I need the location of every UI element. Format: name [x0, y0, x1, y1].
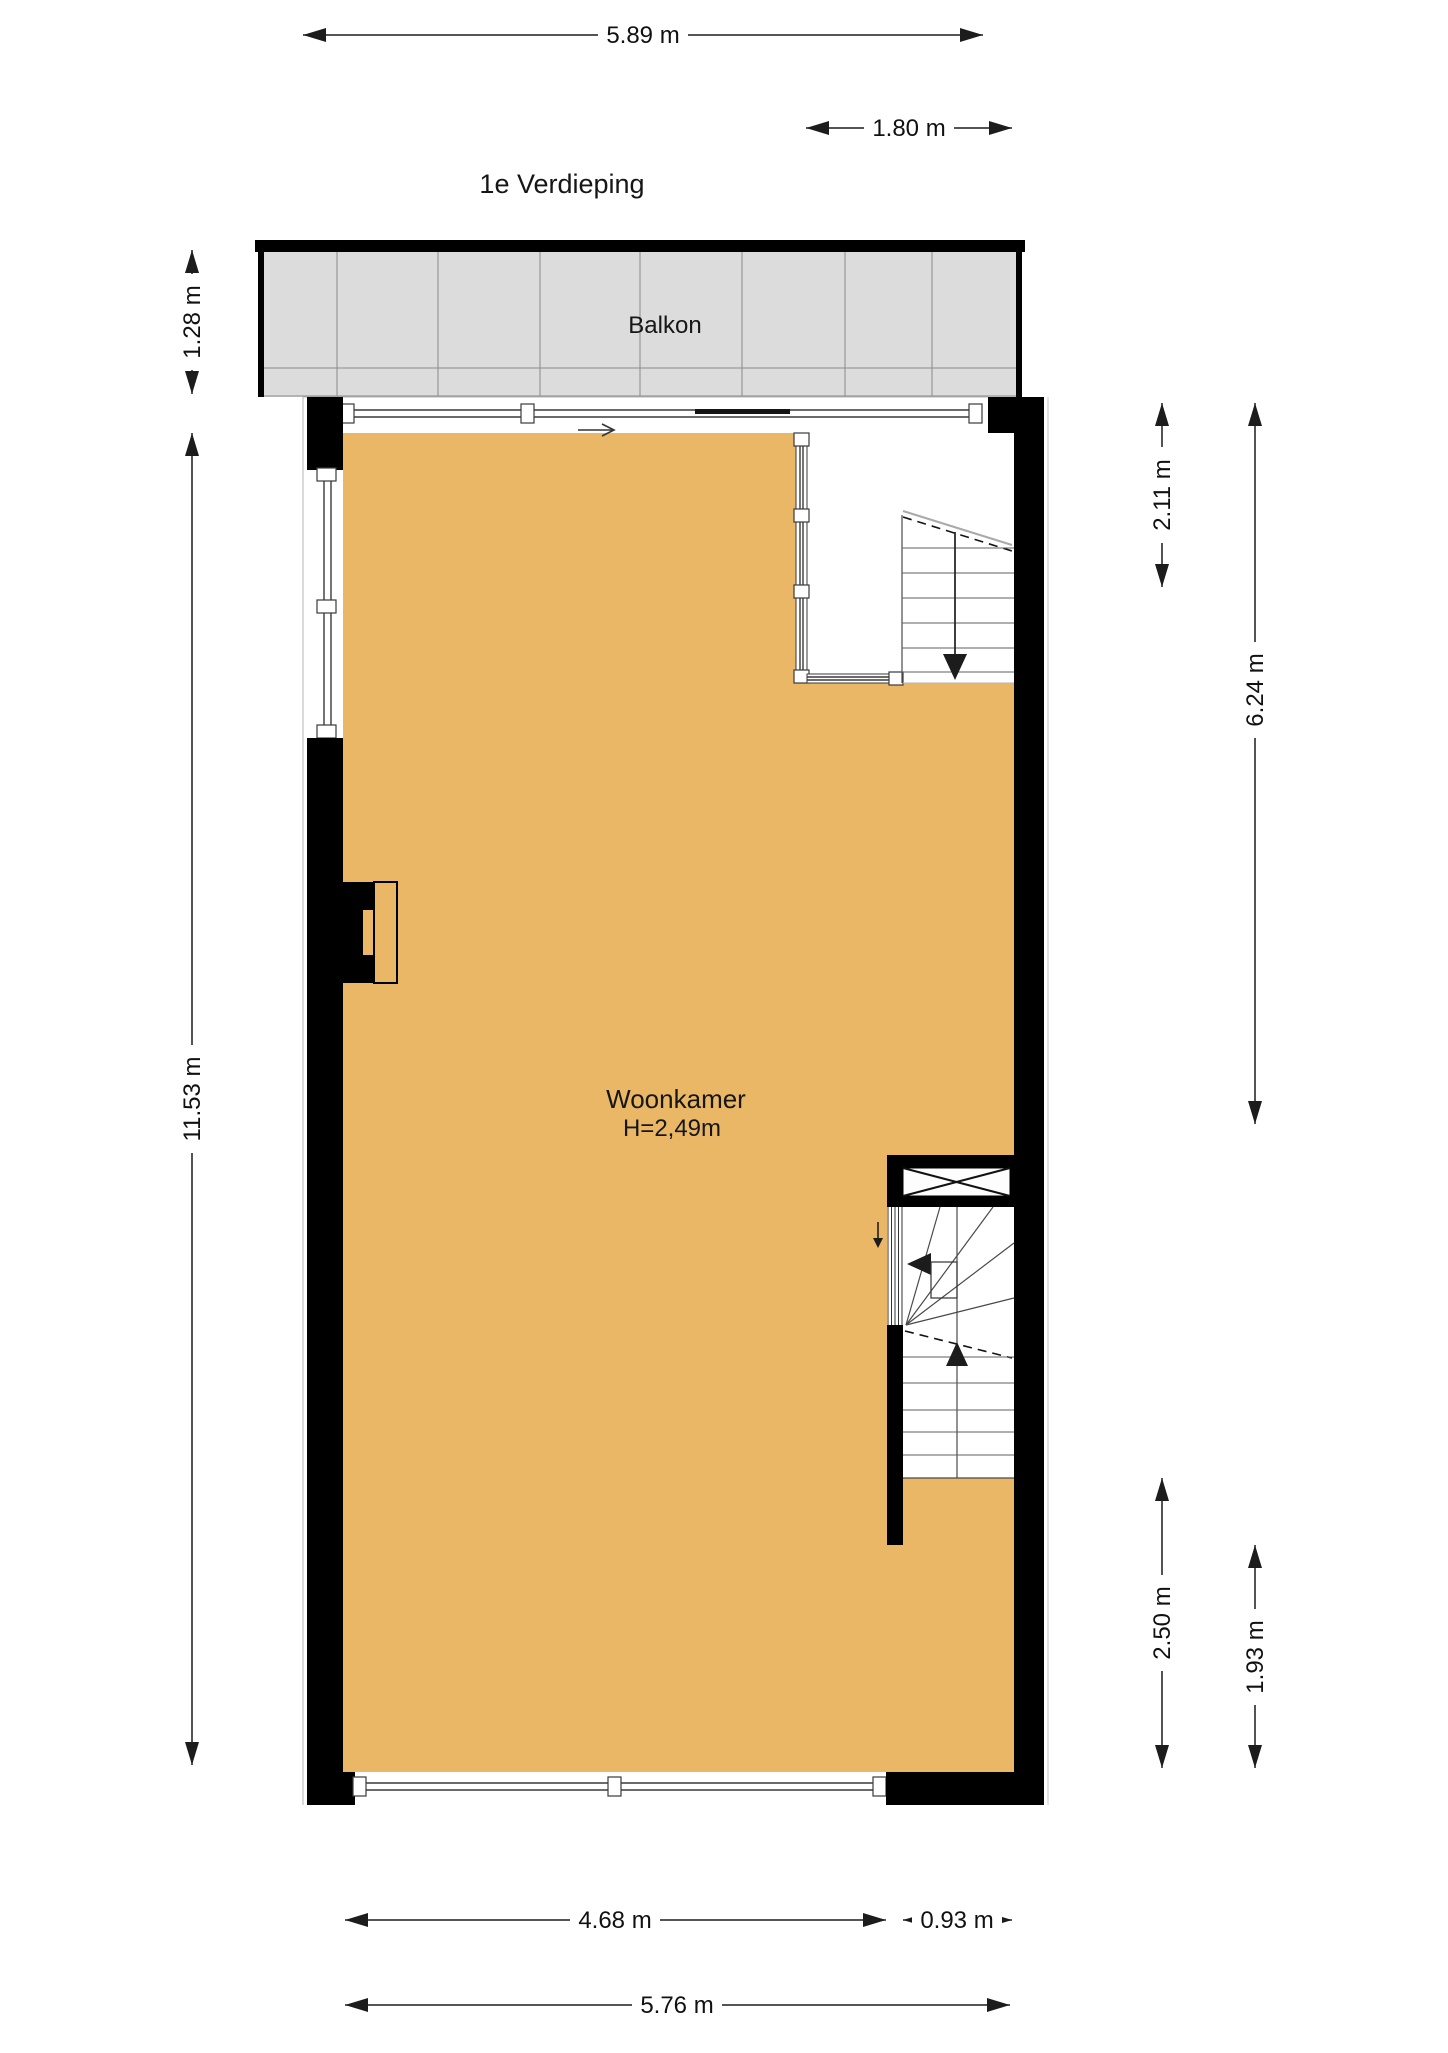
floorplan-canvas: 1e Verdieping Balkon Woonkamer H= — [0, 0, 1448, 2048]
stairwell-glass-partition — [794, 433, 809, 683]
dim-right-lower-height: 1.93 m — [1240, 1545, 1270, 1768]
balcony-wall-left — [258, 252, 264, 397]
dim-left-height: 11.53 m — [177, 433, 207, 1765]
dim-top-width-label: 5.89 m — [606, 22, 679, 49]
stairwell-side-wall — [887, 1325, 903, 1545]
west-wall-upper-block — [307, 397, 343, 470]
stair-railing — [887, 1207, 903, 1325]
west-wall-lower — [307, 738, 343, 1805]
balcony: Balkon — [255, 240, 1025, 397]
dim-stairwell-height-label: 2.11 m — [1149, 459, 1176, 531]
shaft-void — [887, 1155, 1014, 1207]
upper-stairwell — [794, 433, 1014, 685]
dim-left-height-label: 11.53 m — [179, 1057, 206, 1142]
balcony-label: Balkon — [628, 312, 701, 339]
page-title: 1e Verdieping — [479, 169, 644, 199]
dim-top-width: 5.89 m — [303, 20, 983, 50]
dim-bottom-total-width: 5.76 m — [345, 1990, 1010, 2020]
upper-stairs — [902, 511, 1014, 683]
floor-strip-below-stair-wall — [887, 1545, 903, 1772]
sliding-door-overlap — [695, 409, 790, 414]
dim-right-mid-height: 2.50 m — [1147, 1478, 1177, 1768]
dim-stairwell-height: 2.11 m — [1147, 403, 1177, 587]
floor-right-upper — [797, 683, 1014, 1155]
north-wall-sliding-window — [303, 397, 988, 436]
dim-balcony-depth-label: 1.28 m — [179, 285, 206, 358]
dim-stairwell-width-label: 1.80 m — [872, 115, 945, 142]
south-wall-left-block — [307, 1772, 355, 1805]
dim-balcony-depth: 1.28 m — [177, 250, 207, 394]
south-wall-window — [307, 1772, 1044, 1805]
dim-right-lower-height-label: 1.93 m — [1242, 1620, 1269, 1693]
floorplan-page: 1e Verdieping Balkon Woonkamer H= — [0, 0, 1448, 2048]
living-room-name: Woonkamer — [606, 1084, 746, 1114]
dim-bottom-right-width-label: 0.93 m — [920, 1907, 993, 1934]
west-window — [317, 468, 336, 738]
dim-right-mid-height-label: 2.50 m — [1149, 1586, 1176, 1659]
dim-bottom-right-width: 0.93 m — [903, 1905, 1012, 1935]
east-wall-main — [1014, 397, 1044, 1805]
dim-bottom-total-width-label: 5.76 m — [640, 1992, 713, 2019]
stairs-down-arrow-icon — [943, 532, 967, 680]
dim-right-upper-height: 6.24 m — [1240, 403, 1270, 1124]
stairwell-glass-partition-bottom — [807, 672, 903, 685]
floor-right-lower — [903, 1478, 1014, 1772]
dim-bottom-left-width: 4.68 m — [345, 1905, 886, 1935]
dim-right-upper-height-label: 6.24 m — [1242, 653, 1269, 726]
balcony-wall-right — [1016, 252, 1022, 397]
dim-stairwell-width: 1.80 m — [806, 113, 1012, 143]
dim-bottom-left-width-label: 4.68 m — [578, 1907, 651, 1934]
living-room-ceiling-height: H=2,49m — [623, 1115, 721, 1142]
balcony-wall-top — [255, 240, 1025, 252]
floor-left-of-shaft — [797, 1155, 887, 1772]
